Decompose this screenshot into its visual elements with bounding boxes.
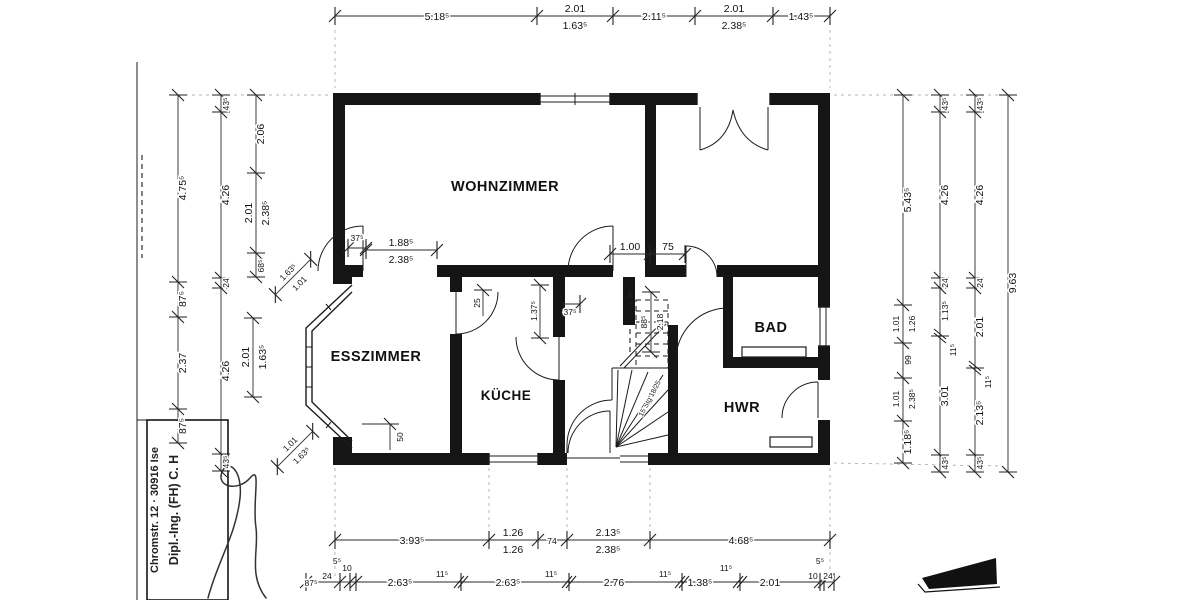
- floor-plan-drawing: Dipl.-Ing. (FH) C. H Chromstr. 12 · 3091…: [0, 0, 1200, 600]
- bad-radiator: [742, 347, 806, 357]
- dim-label: 2.63⁵: [496, 577, 521, 589]
- dim-label: 99: [903, 355, 913, 365]
- door-hall-wohnzimmer: [568, 226, 613, 271]
- stair-label: 15 Stg 18/25: [638, 379, 663, 417]
- dim-label: 1.18⁵: [902, 430, 914, 455]
- dim-label: 43⁵: [221, 456, 231, 469]
- dim-label: 24: [940, 278, 950, 288]
- dim-label: 3.93⁵: [400, 535, 425, 547]
- dim-label: 1.01: [281, 434, 300, 453]
- dim-chain-left-outer: 4.75⁵ 87⁵ 2.37 87⁵: [177, 95, 189, 443]
- door-kueche: [516, 337, 559, 380]
- hwr-radiator: [770, 437, 812, 447]
- room-label-wohnzimmer: WOHNZIMMER: [451, 179, 559, 195]
- dim-label: 2.37: [177, 353, 189, 374]
- bay-window: [306, 285, 352, 448]
- dim-label: 1.00: [620, 241, 641, 253]
- dim-label: 1.01: [891, 390, 901, 407]
- dim-chain-left-inner: 2.06 2.01 2.38⁵ 68⁵ 1.63⁵ 1.01 2.01 1.63…: [240, 95, 323, 477]
- dim-label: 3.01: [939, 386, 951, 407]
- dim-label: 2.11⁵: [642, 11, 666, 23]
- dim-label: 87⁵: [305, 578, 318, 588]
- dim-label: 11⁵: [659, 569, 671, 579]
- dim-label: 1.88⁵: [389, 237, 414, 249]
- signature: [208, 466, 266, 598]
- dim-label: 11⁵: [983, 376, 993, 388]
- door-bad: [676, 308, 728, 360]
- dim-label: 2.38⁵: [722, 20, 747, 32]
- dim-label: 2.63⁵: [388, 577, 413, 589]
- dim-label: 10: [808, 571, 818, 581]
- dim-label: 1.63⁵: [563, 20, 588, 32]
- dim-label: 1.26: [907, 315, 917, 332]
- dim-label: 37⁵: [564, 307, 577, 317]
- dim-label: 5⁵: [333, 556, 341, 566]
- dim-label: 11⁵: [948, 344, 958, 356]
- dim-chain-bottom-lower: 87⁵ 24 5⁵ 10 2.63⁵ 11⁵ 2.63⁵ 11⁵ 2.76 11…: [305, 556, 834, 589]
- dim-label: 2.01: [760, 577, 781, 589]
- dim-label: 10: [342, 563, 352, 573]
- dim-chain-bottom-upper: 3.93⁵ 1.26 1.26 74 2.13⁵ 2.38⁵ 4.68⁵: [335, 527, 830, 556]
- dim-label: 2.38⁵: [907, 389, 917, 409]
- stairs: 15 Stg 18/25: [567, 288, 668, 453]
- room-label-bad: BAD: [755, 320, 788, 336]
- dim-label: 24: [322, 571, 332, 581]
- dim-label: 2.01: [724, 3, 745, 15]
- dim-chain-right-outer: 43⁵ 4.26 24 2.01 11⁵ 2.13⁵ 43⁵: [974, 95, 993, 472]
- dim-label: 87⁵: [177, 418, 189, 434]
- dim-label: 2.13⁵: [974, 401, 986, 426]
- room-label-hwr: HWR: [724, 400, 760, 416]
- room-label-kueche: KÜCHE: [481, 388, 532, 403]
- floor-plan-sheet: Dipl.-Ing. (FH) C. H Chromstr. 12 · 3091…: [0, 0, 1200, 600]
- dim-label: 1.37⁵: [529, 301, 539, 321]
- title-block: Dipl.-Ing. (FH) C. H Chromstr. 12 · 3091…: [137, 420, 266, 600]
- dim-label: 1.38⁵: [688, 577, 713, 589]
- dim-label: 43⁵: [221, 98, 231, 111]
- dim-label: 75: [662, 241, 674, 253]
- dim-label: 2.38⁵: [260, 201, 272, 226]
- dim-label: 2.18: [655, 313, 665, 330]
- dim-label: 9.63: [1007, 273, 1019, 294]
- dim-label: 1.63⁵: [291, 445, 312, 466]
- dim-label: 2.01: [240, 347, 252, 368]
- door-upper-hall: [686, 246, 717, 277]
- dim-bay-bottom: 1.01 1.63⁵: [269, 423, 323, 477]
- dim-label: 24: [823, 571, 833, 581]
- dim-label: 4.26: [939, 185, 951, 206]
- window-kueche-bottom: [489, 453, 538, 465]
- dim-label: 2.01: [974, 317, 986, 338]
- french-door-top: [697, 93, 770, 150]
- dim-label: 11⁵: [436, 569, 448, 579]
- dim-label: 2.01: [243, 203, 255, 224]
- dim-label: 24: [975, 278, 985, 288]
- north-wedge: [918, 558, 1000, 592]
- dim-label: 68⁵: [256, 260, 266, 273]
- dim-chain-right-mid: 43⁵ 4.26 24 1.13⁵ 11⁵ 3.01 43⁵: [939, 95, 958, 472]
- window-bad-right: [818, 307, 830, 346]
- dim-label: 11⁵: [545, 569, 557, 579]
- dim-label: 50: [395, 432, 405, 442]
- dim-label: 25: [472, 298, 482, 308]
- dim-label: 87⁵: [177, 291, 189, 307]
- dim-label: 2.13⁵: [596, 527, 621, 539]
- dim-label: 43⁵: [940, 457, 950, 470]
- dim-bay-top: 1.63⁵ 1.01: [267, 251, 321, 305]
- dim-label: 88⁵: [639, 316, 649, 329]
- dim-label: 1.63⁵: [257, 345, 269, 370]
- dim-label: 4.26: [220, 185, 232, 206]
- dim-label: 4.26: [220, 361, 232, 382]
- dim-label: 1.43⁵: [789, 11, 814, 23]
- dim-label: 2.38⁵: [596, 544, 621, 556]
- dim-label: 4.26: [974, 185, 986, 206]
- dim-label: 2.06: [255, 124, 267, 145]
- dim-label: 2.76: [604, 577, 625, 589]
- dim-label: 5.18⁵: [425, 11, 450, 23]
- title-block-name: Dipl.-Ing. (FH) C. H: [167, 455, 181, 565]
- dim-label: 74: [547, 536, 557, 546]
- room-label-esszimmer: ESSZIMMER: [331, 349, 422, 365]
- dim-label: 1.26: [503, 544, 524, 556]
- dim-label: 2.01: [565, 3, 586, 15]
- window-top-wohnzimmer: [540, 93, 610, 105]
- extension-guides: [185, 30, 1000, 576]
- dim-chain-top: 5.18⁵ 2.01 1.63⁵ 2.11⁵ 2.01 2.38⁵ 1.43⁵: [335, 3, 830, 32]
- dim-label: 5⁵: [816, 556, 824, 566]
- dim-label: 1.26: [503, 527, 524, 539]
- title-block-address: Chromstr. 12 · 30916 Ise: [149, 447, 161, 573]
- dim-label: 4.68⁵: [729, 535, 754, 547]
- dim-label: 43⁵: [975, 98, 985, 111]
- dim-label: 43⁵: [975, 457, 985, 470]
- dim-label: 1.13⁵: [940, 301, 950, 321]
- dim-label: 24: [221, 278, 231, 288]
- door-entrance: [568, 411, 610, 453]
- dim-label: 1.01: [891, 315, 901, 332]
- dim-label: 2.38⁵: [389, 254, 414, 266]
- dim-label: 11⁵: [720, 563, 732, 573]
- dim-chain-left-mid: 43⁵ 4.26 24 4.26 43⁵: [220, 95, 232, 471]
- dim-label: 4.75⁵: [177, 176, 189, 201]
- dim-label: 5.43⁵: [902, 188, 914, 213]
- entrance-sidelight: [567, 456, 648, 462]
- dim-label: 37⁵: [351, 233, 364, 243]
- sheet-border: [137, 62, 142, 600]
- door-hwr-exterior: [782, 382, 818, 418]
- dim-chain-right-inner: 5.43⁵ 1.01 1.26 99 1.01 2.38⁵ 1.18⁵: [891, 95, 917, 463]
- dim-label: 43⁵: [940, 98, 950, 111]
- dim-chain-right-total: 9.63: [1007, 95, 1019, 472]
